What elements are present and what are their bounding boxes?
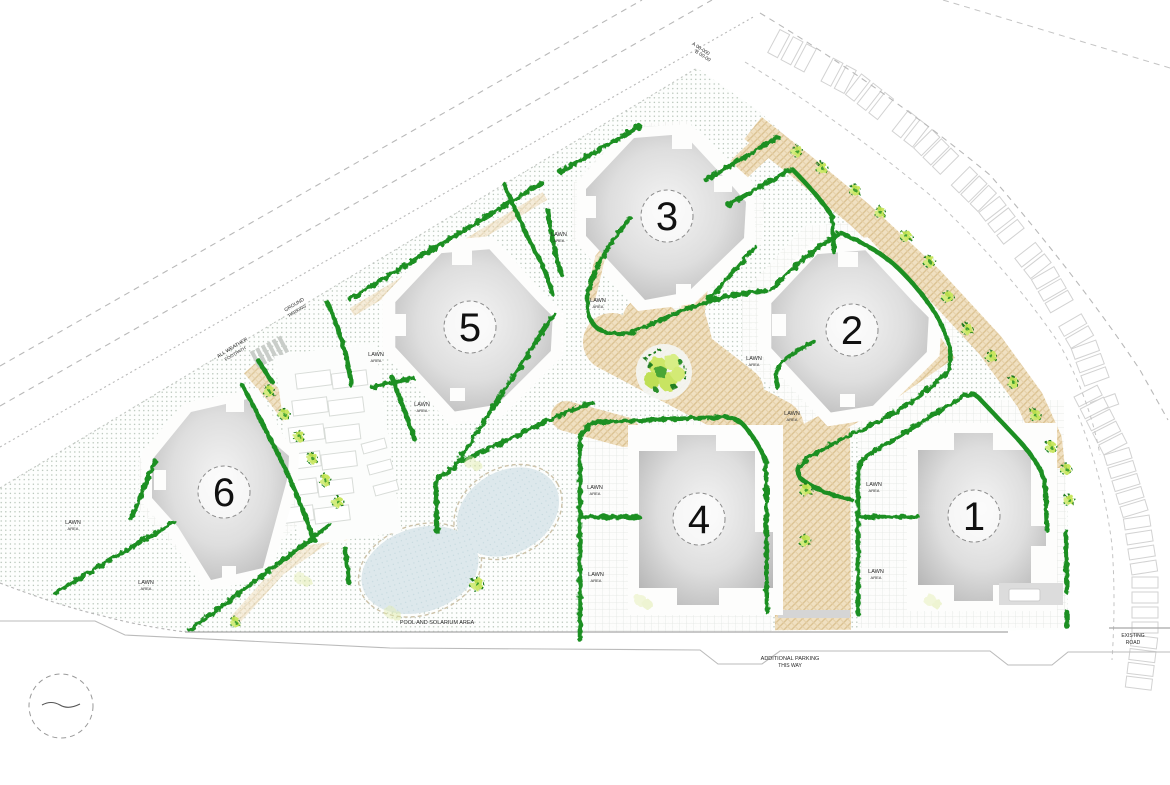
svg-text:ROAD: ROAD <box>1126 640 1141 646</box>
svg-text:ADDITIONAL PARKING: ADDITIONAL PARKING <box>761 656 820 662</box>
svg-text:AREA: AREA <box>591 578 602 583</box>
svg-text:POOL AND SOLARIUM AREA: POOL AND SOLARIUM AREA <box>400 620 475 626</box>
svg-text:AREA: AREA <box>749 362 760 367</box>
svg-text:THIS WAY: THIS WAY <box>778 663 802 669</box>
svg-text:AREA: AREA <box>141 586 152 591</box>
svg-text:AREA: AREA <box>590 491 601 496</box>
svg-text:6: 6 <box>213 471 235 515</box>
svg-text:1: 1 <box>963 495 985 539</box>
svg-text:AREA: AREA <box>593 304 604 309</box>
svg-text:AREA: AREA <box>417 408 428 413</box>
svg-text:AREA: AREA <box>371 358 382 363</box>
svg-text:AREA: AREA <box>68 526 79 531</box>
svg-text:EXISTING: EXISTING <box>1121 633 1144 639</box>
svg-text:3: 3 <box>656 195 678 239</box>
svg-text:5: 5 <box>459 306 481 350</box>
svg-text:AREA: AREA <box>871 575 882 580</box>
svg-text:AREA: AREA <box>787 417 798 422</box>
svg-text:4: 4 <box>688 498 710 542</box>
svg-text:AREA: AREA <box>554 238 565 243</box>
svg-text:AREA: AREA <box>869 488 880 493</box>
svg-text:2: 2 <box>841 309 863 353</box>
